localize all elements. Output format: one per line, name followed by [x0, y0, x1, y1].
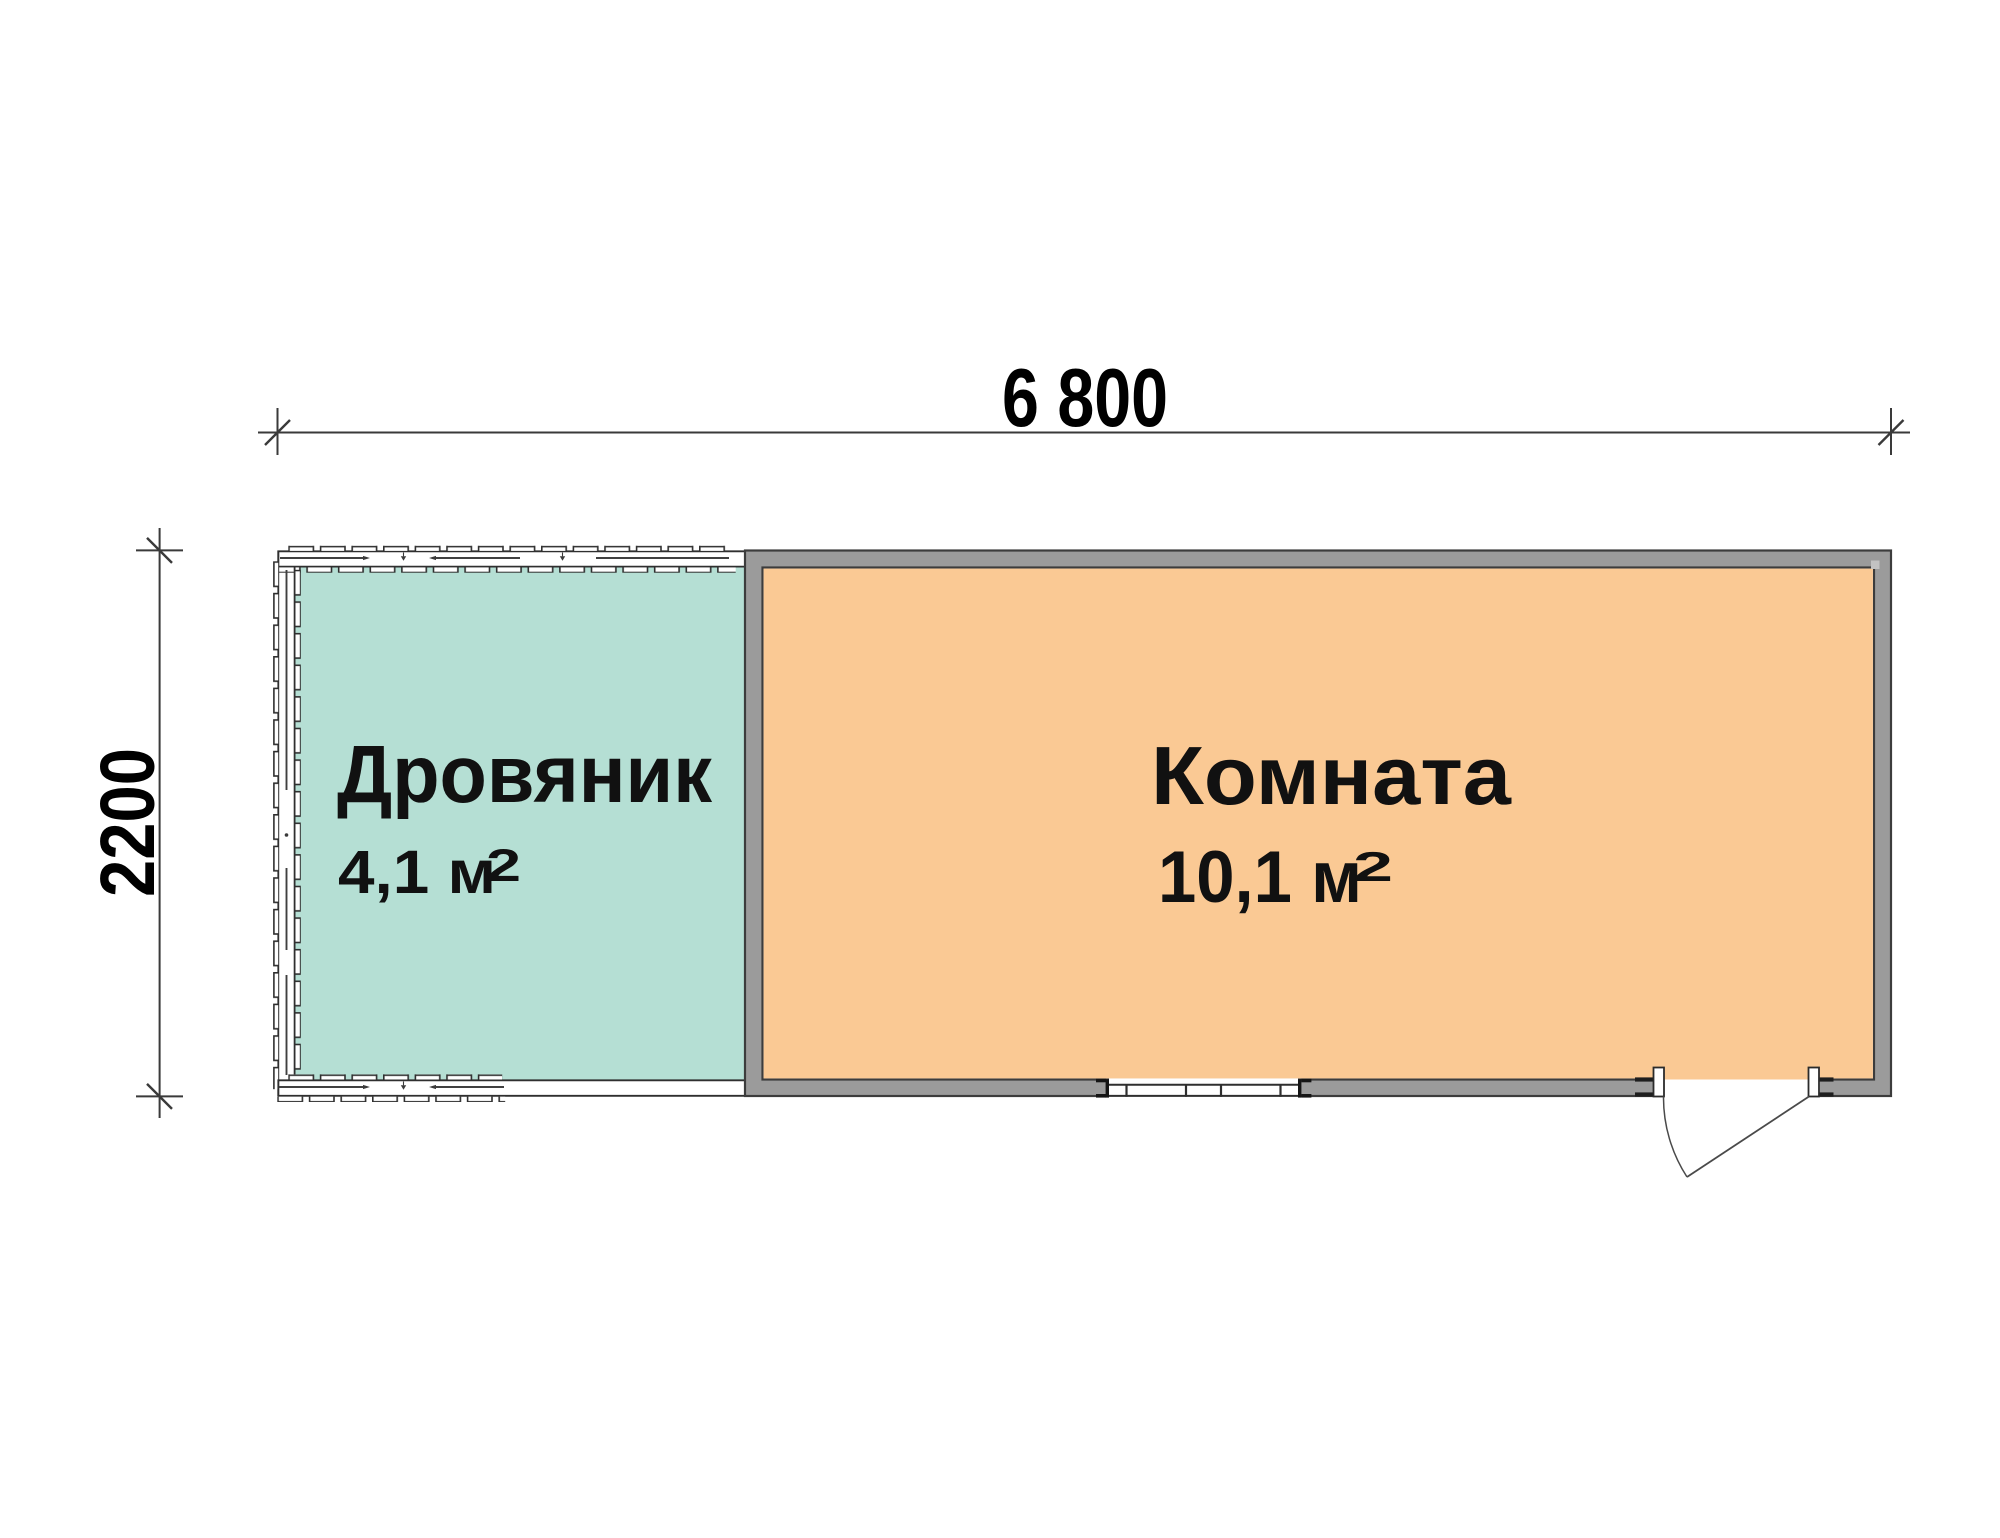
svg-text:10,1 м: 10,1 м [1158, 837, 1362, 918]
svg-text:2: 2 [486, 840, 521, 891]
svg-text:6 800: 6 800 [1002, 351, 1168, 444]
svg-text:Дровяник: Дровяник [337, 729, 713, 820]
svg-text:4,1 м: 4,1 м [338, 838, 496, 906]
svg-text:2200: 2200 [85, 748, 171, 897]
svg-text:Комната: Комната [1151, 729, 1512, 822]
svg-text:2: 2 [1353, 843, 1393, 890]
